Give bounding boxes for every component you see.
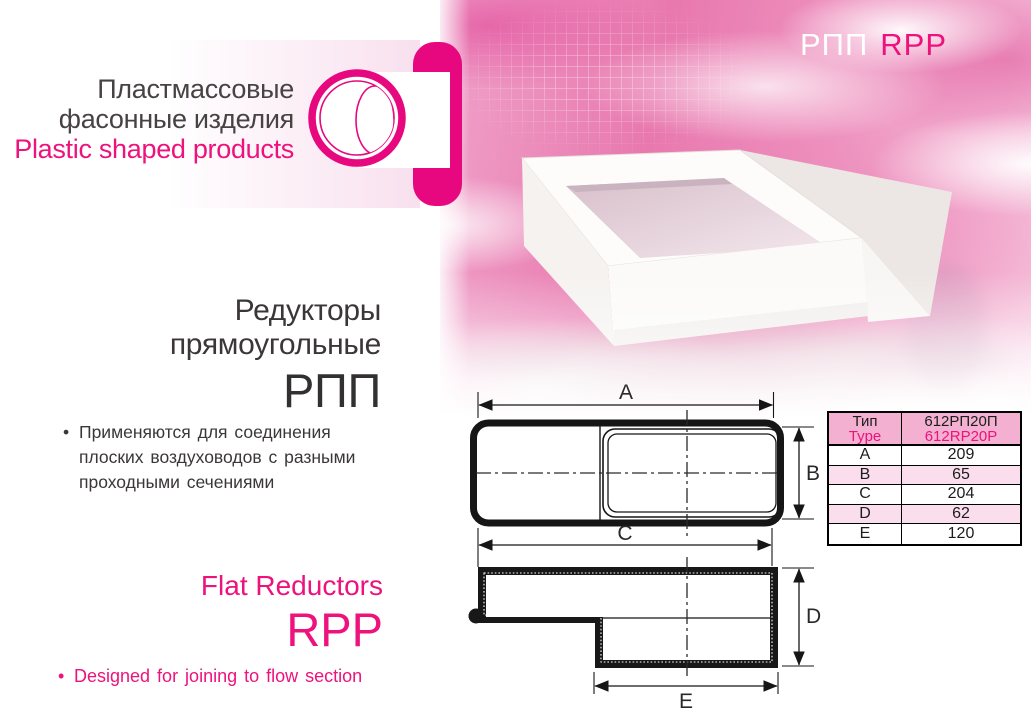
product-heading-en: Flat Reductors RPP: [0, 570, 383, 654]
product-heading-ru: Редукторы прямоугольные РПП: [0, 294, 381, 414]
product-code-ru: РПП: [800, 27, 868, 62]
table-row: E 120: [829, 524, 1020, 544]
spec-header-value: 612РП20П 612RP20P: [901, 413, 1020, 444]
spec-header-value-ru: 612РП20П: [924, 414, 997, 429]
spec-value: 120: [901, 524, 1020, 544]
product-description-ru: • Применяются для соединения плоских воз…: [63, 420, 375, 495]
spec-param: B: [829, 466, 901, 485]
product-description-en-text: Designed for joining to flow section: [74, 666, 362, 686]
brand-title-ru-line1: Пластмассовые: [0, 74, 294, 104]
spec-param: C: [829, 485, 901, 504]
table-row: D 62: [829, 505, 1020, 525]
dim-label-a: A: [619, 381, 633, 404]
dim-label-d: D: [806, 605, 821, 628]
spec-param: E: [829, 524, 901, 544]
product-code-ru-large: РПП: [0, 368, 381, 414]
product-heading-ru-line1: Редукторы: [0, 294, 381, 328]
side-view-drawing: D E: [469, 557, 822, 713]
dim-label-b: B: [806, 462, 820, 485]
bullet-marker: •: [58, 664, 64, 688]
spec-param: D: [829, 505, 901, 524]
spec-table: Тип Type 612РП20П 612RP20P A 209 B 65 C …: [827, 411, 1022, 546]
table-row: A 209: [829, 446, 1020, 466]
spec-param: A: [829, 446, 901, 465]
product-heading-en-line1: Flat Reductors: [0, 570, 383, 602]
table-row: B 65: [829, 466, 1020, 486]
product-description-en: • Designed for joining to flow section: [58, 664, 398, 688]
table-row: C 204: [829, 485, 1020, 505]
catalog-page: РППRPP Пластмассовые фасонные изделия Pl…: [0, 0, 1031, 713]
top-view-drawing: A B C: [474, 381, 821, 567]
pipe-reducer-logo-icon: [303, 60, 419, 176]
product-code-en-large: RPP: [0, 606, 383, 654]
brand-title-en: Plastic shaped products: [0, 134, 294, 164]
product-code-en: RPP: [880, 27, 947, 62]
spec-header-param-en: Type: [849, 429, 882, 444]
product-code-header: РППRPP: [800, 27, 947, 63]
spec-header-param-ru: Тип: [852, 414, 877, 429]
spec-value: 204: [901, 485, 1020, 504]
product-heading-ru-line2: прямоугольные: [0, 328, 381, 362]
spec-header-param: Тип Type: [829, 413, 901, 444]
spec-table-header: Тип Type 612РП20П 612RP20P: [829, 413, 1020, 446]
spec-header-value-en: 612RP20P: [925, 429, 998, 444]
bullet-marker: •: [63, 420, 69, 445]
product-description-ru-text: Применяются для соединения плоских возду…: [79, 422, 355, 492]
technical-drawing: A B C D E: [440, 378, 832, 713]
hero-section: РППRPP: [440, 0, 1031, 432]
dim-label-e: E: [679, 690, 693, 713]
spec-value: 62: [901, 505, 1020, 524]
brand-title: Пластмассовые фасонные изделия Plastic s…: [0, 74, 294, 164]
spec-value: 209: [901, 446, 1020, 465]
brand-title-ru-line2: фасонные изделия: [0, 104, 294, 134]
spec-value: 65: [901, 466, 1020, 485]
dim-label-c: C: [617, 522, 632, 545]
